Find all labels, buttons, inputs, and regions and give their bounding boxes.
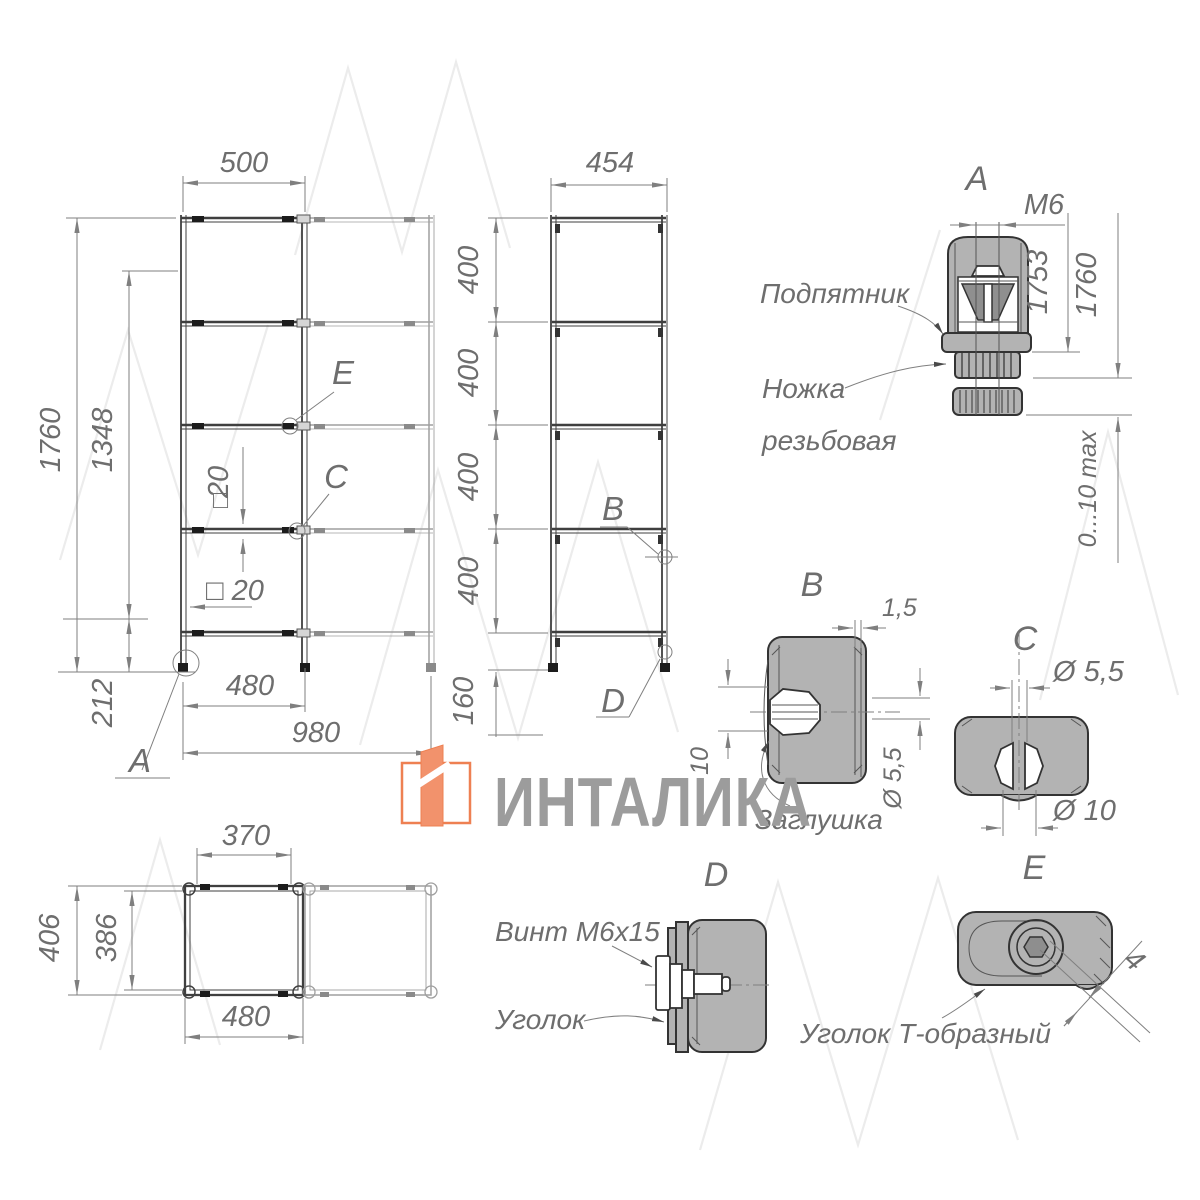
- detail-c-dim-d55: Ø 5,5: [1052, 656, 1125, 688]
- top-view: 370 406 386 480: [34, 820, 437, 1044]
- side-shelves: [552, 218, 666, 647]
- callout-d-circle: [658, 645, 672, 659]
- detail-a-labels: Подпятник Ножка резьбовая: [760, 278, 946, 456]
- front-dim-980: 980: [292, 717, 340, 749]
- leg-label-line2: резьбовая: [761, 425, 896, 456]
- front-dim-500: 500: [220, 147, 268, 179]
- detail-c-title: C: [1013, 620, 1038, 658]
- callout-a-label: A: [127, 742, 151, 779]
- drawing-sheet: 500 1760 1348 212 20 □ □ 20 480: [0, 0, 1200, 1200]
- detail-a-dim-adjust: 0...10 max: [1074, 429, 1102, 547]
- footplate-label: Подпятник: [760, 278, 911, 309]
- side-dim-160: 160: [448, 677, 480, 725]
- shelving-technical-drawing: 500 1760 1348 212 20 □ □ 20 480: [0, 0, 1200, 1200]
- callout-e-label: E: [332, 354, 355, 391]
- detail-d-title: D: [704, 856, 729, 894]
- side-dim-400-2: 400: [453, 349, 485, 397]
- side-dim-400-4: 400: [453, 557, 485, 605]
- t-bracket-label: Уголок Т-образный: [799, 1018, 1051, 1049]
- callout-d-label: D: [601, 682, 625, 719]
- detail-a-dim-m6: M6: [1024, 189, 1065, 221]
- front-dim-480: 480: [226, 670, 274, 702]
- top-dim-370: 370: [222, 820, 270, 852]
- front-dim-1348: 1348: [87, 408, 119, 473]
- front-view: 500 1760 1348 212 20 □ □ 20 480: [35, 147, 436, 779]
- detail-e-title: E: [1023, 849, 1046, 887]
- side-view-dimensions: 454 400 400 400 400 160: [448, 147, 667, 737]
- front-dim-212: 212: [87, 679, 119, 728]
- top-dim-386: 386: [91, 913, 123, 962]
- side-view: 454 400 400 400 400 160 B D: [448, 147, 678, 737]
- bracket-label: Уголок: [494, 1004, 587, 1035]
- detail-e-dim-4: 4: [1117, 943, 1150, 978]
- brand-logo: ИНТАЛИКА: [402, 745, 812, 841]
- side-foot-left: [548, 663, 558, 672]
- side-view-callouts: B D: [596, 490, 678, 719]
- detail-b-dim-wall: 1,5: [882, 594, 917, 622]
- detail-d: D Винт M6x15 Уголок: [494, 856, 772, 1052]
- detail-c-dim-d10: Ø 10: [1052, 795, 1116, 827]
- front-view-dimensions: 500 1760 1348 212 20 □ □ 20 480: [35, 147, 431, 760]
- side-dim-400-3: 400: [453, 453, 485, 501]
- callout-b-label: B: [602, 490, 624, 527]
- logo-text: ИНТАЛИКА: [494, 763, 812, 841]
- top-view-dimensions: 370 406 386 480: [34, 820, 303, 1044]
- side-dim-400-1: 400: [453, 246, 485, 294]
- front-dim-20v-square: □: [213, 486, 229, 514]
- top-view-frame: [183, 883, 437, 998]
- detail-a-title: A: [964, 160, 989, 198]
- detail-a-body: [942, 222, 1031, 415]
- front-view-callouts: A E C: [115, 354, 355, 779]
- detail-e: E 4 Уголок Т-образный: [799, 849, 1151, 1049]
- top-dim-406: 406: [34, 913, 66, 962]
- front-foot-left: [178, 663, 188, 672]
- front-dim-20h: □ 20: [206, 575, 264, 607]
- side-dim-454: 454: [586, 147, 634, 179]
- logo-i-icon: [421, 745, 443, 826]
- side-view-frame: [548, 215, 670, 672]
- detail-a-dim-1753: 1753: [1022, 250, 1054, 315]
- front-dim-1760: 1760: [35, 408, 67, 473]
- leg-label-line1: Ножка: [762, 373, 845, 404]
- top-dim-480: 480: [222, 1001, 270, 1033]
- callout-c-label: C: [324, 458, 349, 495]
- detail-a-dim-1760: 1760: [1071, 253, 1103, 318]
- detail-a: A: [760, 160, 1132, 563]
- detail-d-body: [645, 920, 772, 1052]
- detail-b-body: [750, 637, 900, 783]
- detail-b-dim-d55: Ø 5,5: [879, 747, 907, 809]
- front-foot-right: [426, 663, 436, 672]
- detail-c: C Ø 5,5 Ø 10: [955, 620, 1125, 836]
- detail-b-title: B: [801, 566, 824, 604]
- side-foot-right: [660, 663, 670, 672]
- screw-label: Винт M6x15: [495, 916, 660, 947]
